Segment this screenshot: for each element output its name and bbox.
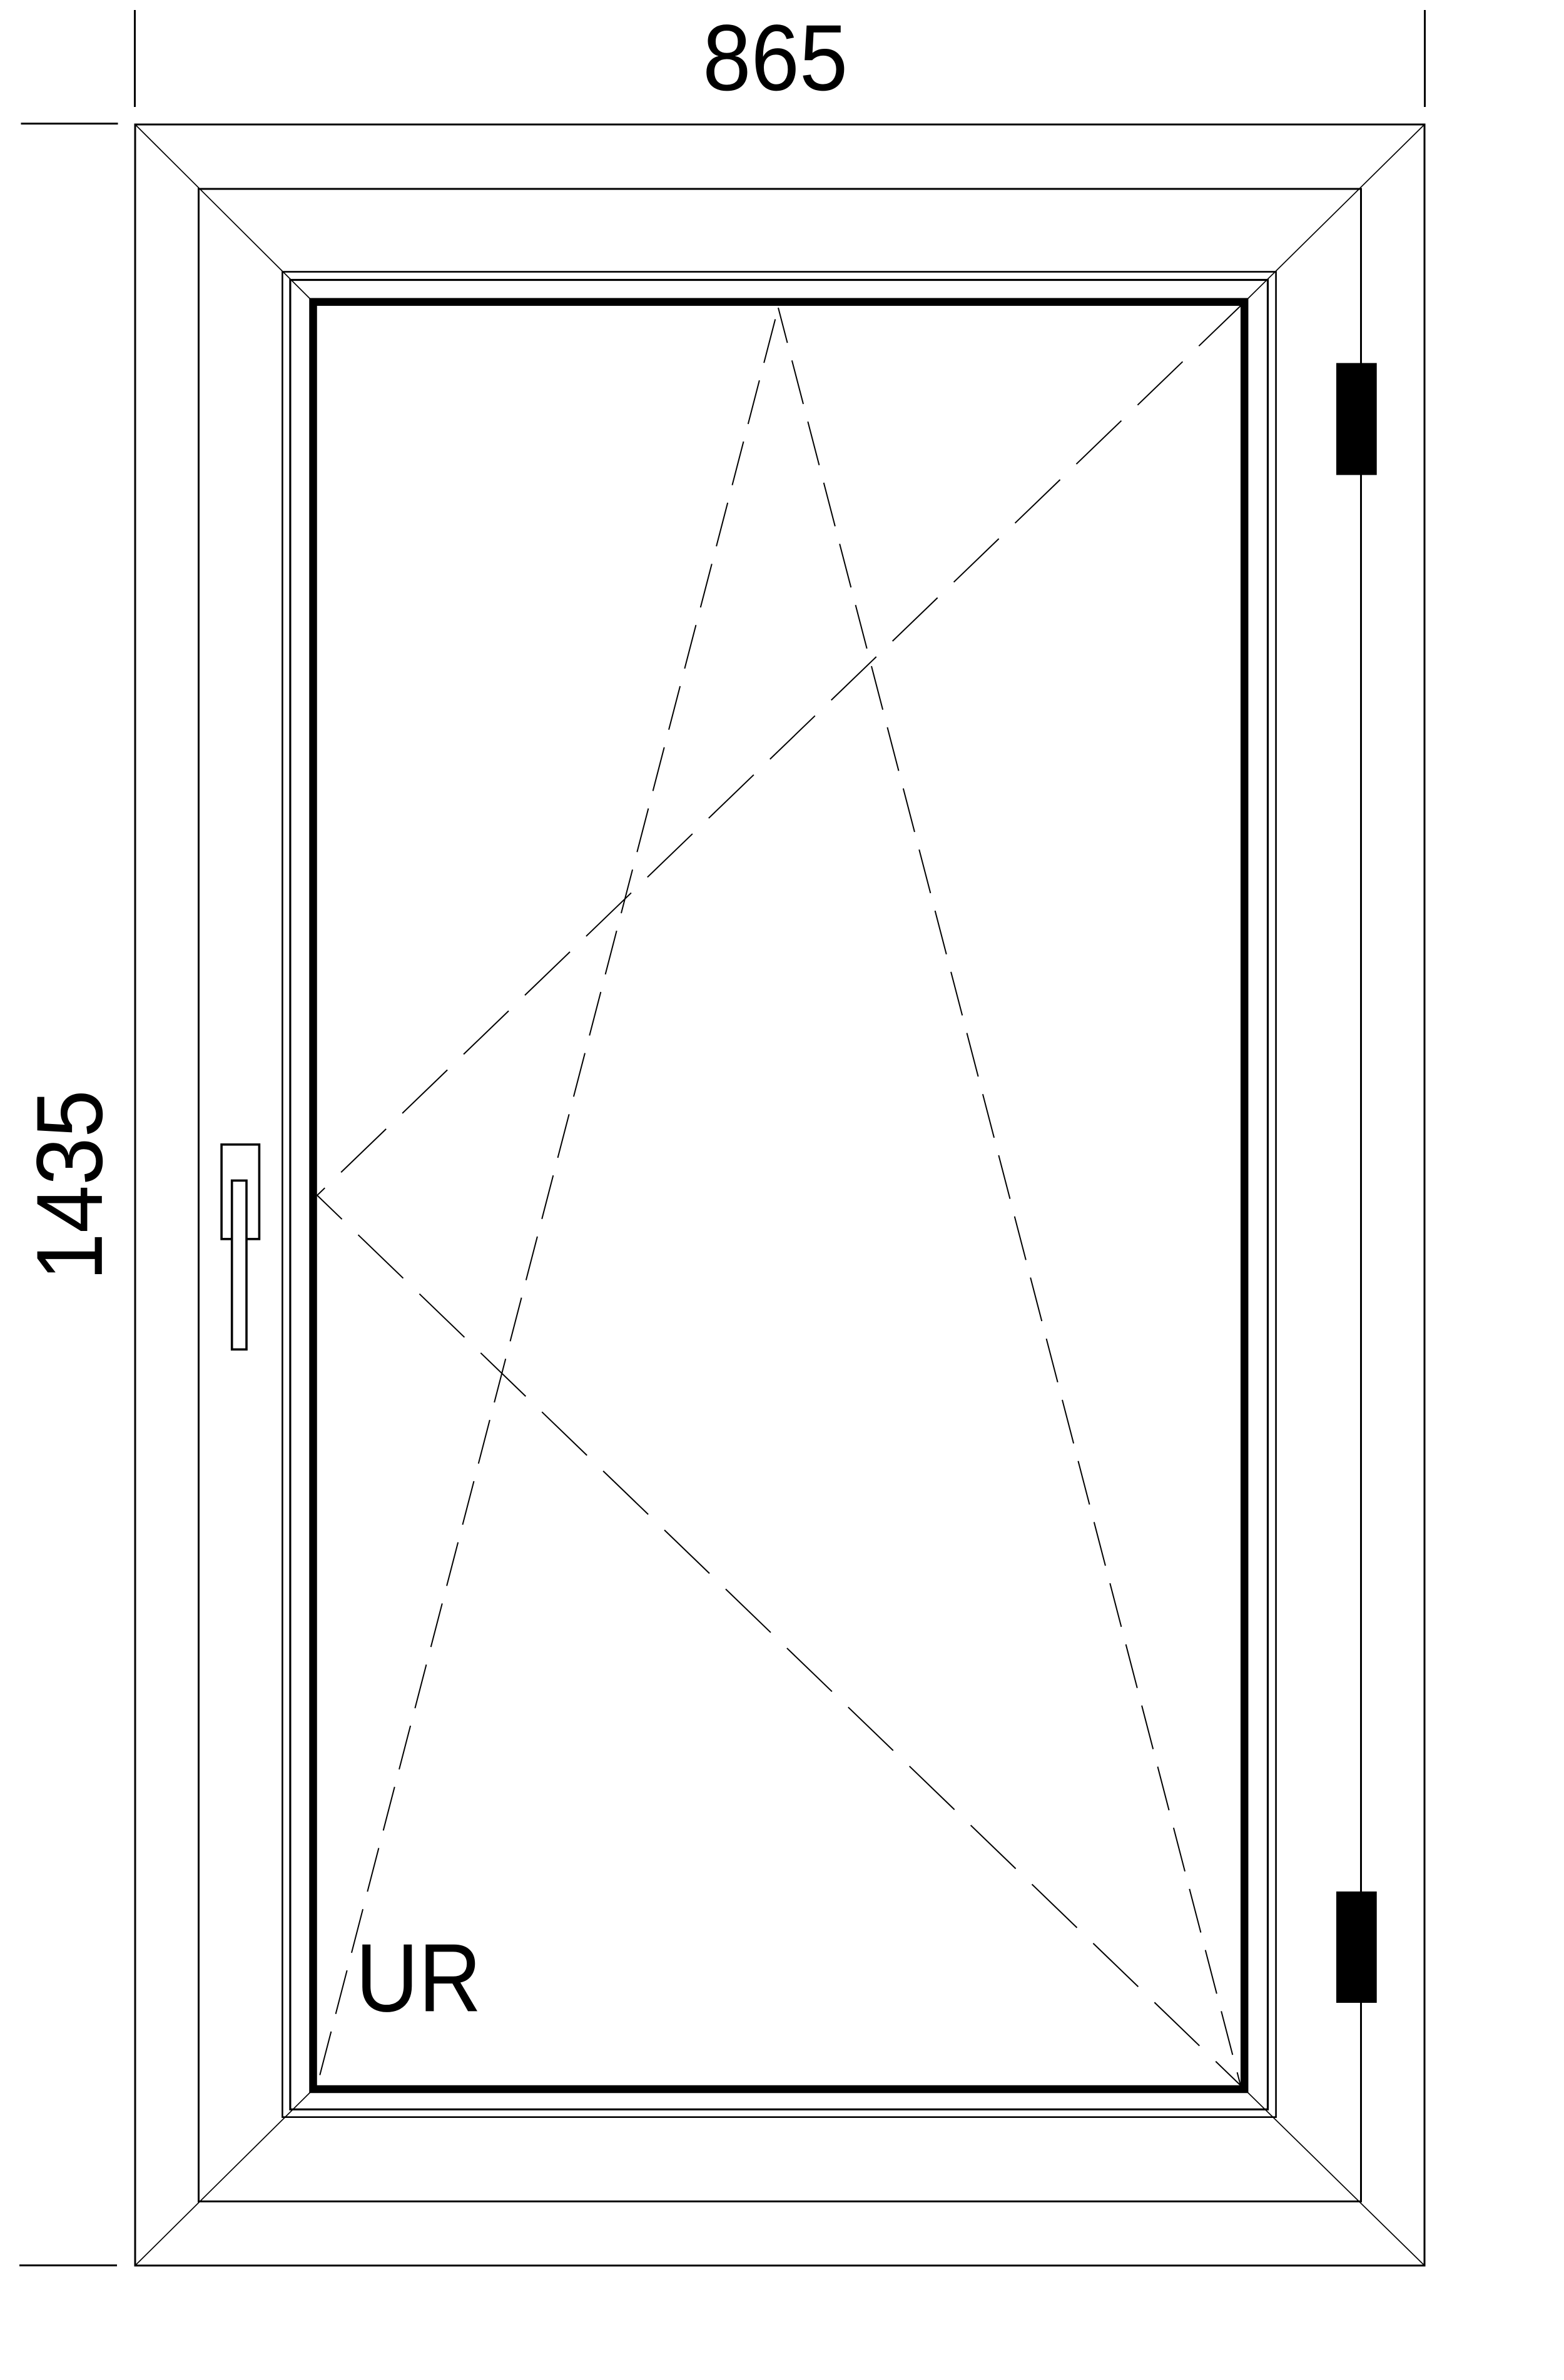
svg-text:1435: 1435 bbox=[17, 1090, 122, 1280]
svg-text:865: 865 bbox=[703, 5, 848, 110]
svg-text:UR: UR bbox=[356, 1923, 482, 2032]
